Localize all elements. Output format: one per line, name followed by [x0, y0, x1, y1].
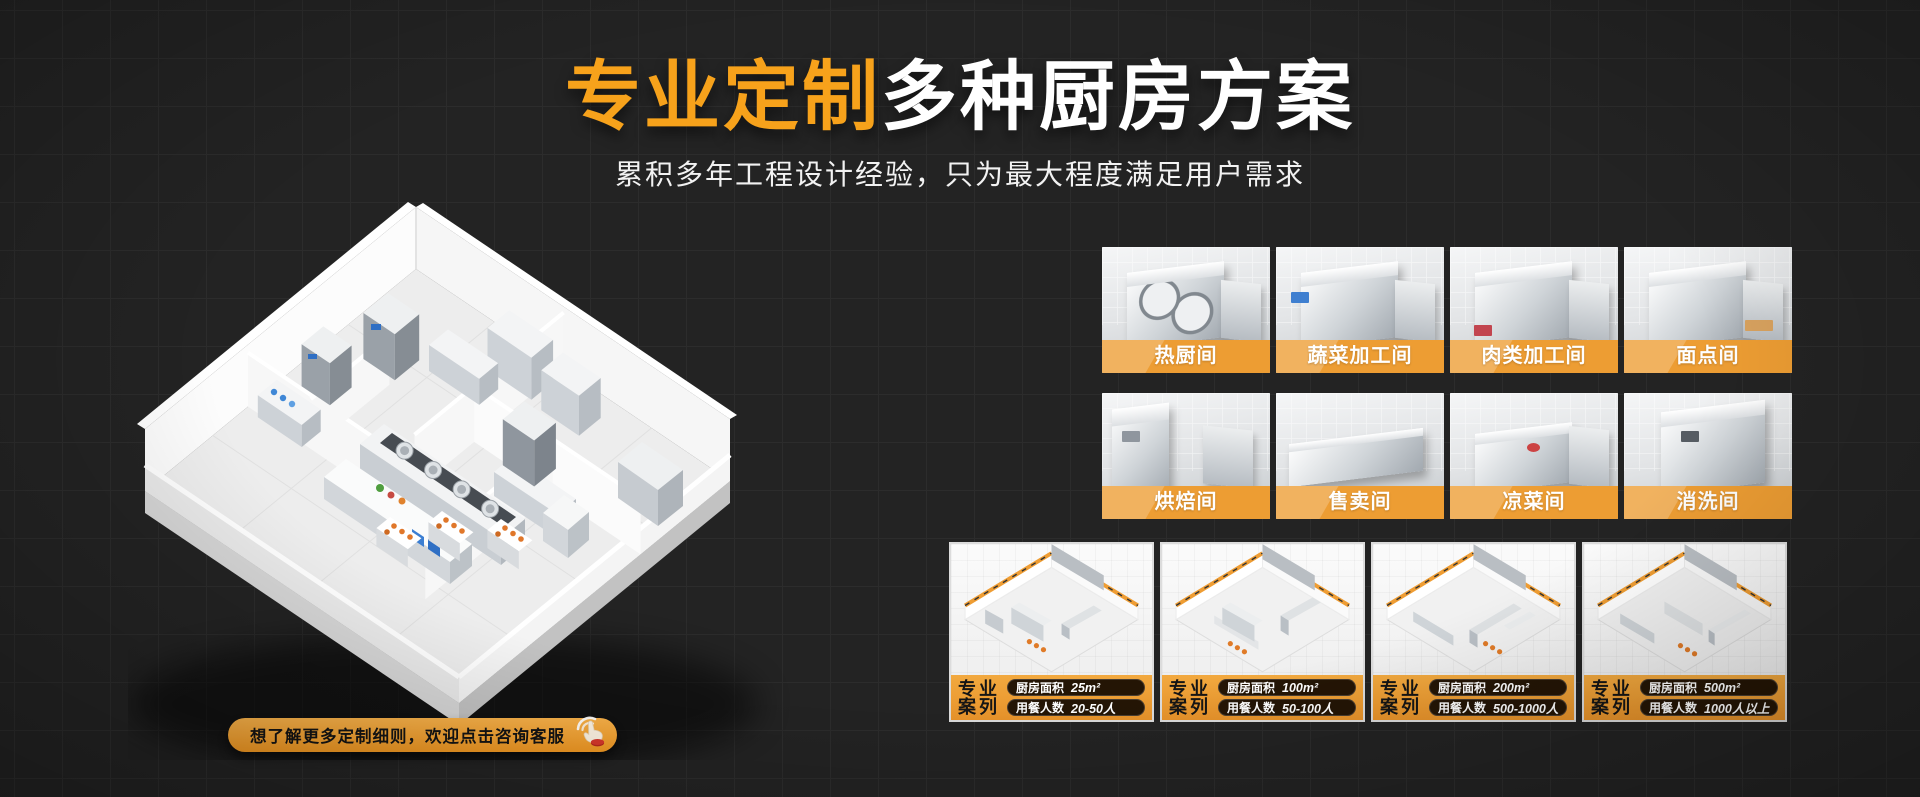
mini-floorplan-icon: [1373, 544, 1574, 677]
case-banner: 专业 案列 厨房面积200m² 用餐人数500-1000人: [1373, 675, 1574, 720]
title-highlight: 专业定制: [565, 55, 881, 140]
case-photo-illustration: [951, 544, 1152, 677]
room-label: 消洗间: [1624, 486, 1792, 519]
case-diners-pill: 用餐人数50-100人: [1218, 699, 1356, 716]
case-card-grid: 专业 案列 厨房面积25m² 用餐人数20-50人: [949, 542, 1787, 722]
room-card-pastry[interactable]: 面点间: [1624, 247, 1792, 373]
case-photo-illustration: [1373, 544, 1574, 677]
case-badge: 专业 案列: [1169, 680, 1211, 716]
promo-banner: 专业定制多种厨房方案 累积多年工程设计经验，只为最大程度满足用户需求: [0, 0, 1920, 797]
case-badge: 专业 案列: [1591, 680, 1633, 716]
case-card-200[interactable]: 专业 案列 厨房面积200m² 用餐人数500-1000人: [1371, 542, 1576, 722]
case-diners-pill: 用餐人数20-50人: [1007, 699, 1145, 716]
case-banner: 专业 案列 厨房面积500m² 用餐人数1000人以上: [1584, 675, 1785, 720]
room-label: 肉类加工间: [1450, 340, 1618, 373]
case-area-pill: 厨房面积100m²: [1218, 679, 1356, 696]
case-area-pill: 厨房面积500m²: [1640, 679, 1778, 696]
room-label-ribbon: 售卖间: [1276, 486, 1444, 519]
room-label: 凉菜间: [1450, 486, 1618, 519]
room-label-ribbon: 消洗间: [1624, 486, 1792, 519]
room-card-grid: 热厨间 蔬菜加工间 肉类加工间 面点间 烘焙间 售卖间 凉菜间 消洗间: [1102, 247, 1792, 519]
equipment-shape: [1127, 261, 1224, 349]
room-label-ribbon: 热厨间: [1102, 340, 1270, 373]
mini-floorplan-icon: [951, 544, 1152, 677]
room-card-meat-processing[interactable]: 肉类加工间: [1450, 247, 1618, 373]
room-label-ribbon: 蔬菜加工间: [1276, 340, 1444, 373]
hero-header: 专业定制多种厨房方案 累积多年工程设计经验，只为最大程度满足用户需求: [0, 58, 1920, 193]
room-label: 面点间: [1624, 340, 1792, 373]
mini-floorplan-icon: [1162, 544, 1363, 677]
case-area-pill: 厨房面积200m²: [1429, 679, 1567, 696]
consult-cta-label: 想了解更多定制细则，欢迎点击咨询客服: [250, 723, 565, 747]
case-area-pill: 厨房面积25m²: [1007, 679, 1145, 696]
room-label: 热厨间: [1102, 340, 1270, 373]
kitchen-floorplan-illustration: [128, 188, 796, 760]
click-hand-icon: [571, 712, 607, 748]
room-label: 售卖间: [1276, 486, 1444, 519]
case-banner: 专业 案列 厨房面积100m² 用餐人数50-100人: [1162, 675, 1363, 720]
case-diners-pill: 用餐人数1000人以上: [1640, 699, 1778, 716]
room-label-ribbon: 凉菜间: [1450, 486, 1618, 519]
room-label-ribbon: 烘焙间: [1102, 486, 1270, 519]
floorplan-svg: [128, 188, 796, 760]
page-title: 专业定制多种厨房方案: [0, 58, 1920, 139]
room-label-ribbon: 面点间: [1624, 340, 1792, 373]
room-card-cold-dish[interactable]: 凉菜间: [1450, 393, 1618, 519]
case-badge: 专业 案列: [958, 680, 1000, 716]
case-diners-pill: 用餐人数500-1000人: [1429, 699, 1567, 716]
room-card-washing[interactable]: 消洗间: [1624, 393, 1792, 519]
room-label: 烘焙间: [1102, 486, 1270, 519]
room-label-ribbon: 肉类加工间: [1450, 340, 1618, 373]
consult-cta-button[interactable]: 想了解更多定制细则，欢迎点击咨询客服: [228, 718, 617, 752]
room-card-vegetable-processing[interactable]: 蔬菜加工间: [1276, 247, 1444, 373]
case-card-100[interactable]: 专业 案列 厨房面积100m² 用餐人数50-100人: [1160, 542, 1365, 722]
case-card-500[interactable]: 专业 案列 厨房面积500m² 用餐人数1000人以上: [1582, 542, 1787, 722]
mini-floorplan-icon: [1584, 544, 1785, 677]
page-subtitle: 累积多年工程设计经验，只为最大程度满足用户需求: [0, 153, 1920, 193]
case-banner: 专业 案列 厨房面积25m² 用餐人数20-50人: [951, 675, 1152, 720]
room-card-serving[interactable]: 售卖间: [1276, 393, 1444, 519]
title-rest: 多种厨房方案: [881, 55, 1355, 140]
room-card-hot-kitchen[interactable]: 热厨间: [1102, 247, 1270, 373]
case-photo-illustration: [1162, 544, 1363, 677]
room-label: 蔬菜加工间: [1276, 340, 1444, 373]
room-card-baking[interactable]: 烘焙间: [1102, 393, 1270, 519]
case-badge: 专业 案列: [1380, 680, 1422, 716]
case-photo-illustration: [1584, 544, 1785, 677]
case-card-25[interactable]: 专业 案列 厨房面积25m² 用餐人数20-50人: [949, 542, 1154, 722]
